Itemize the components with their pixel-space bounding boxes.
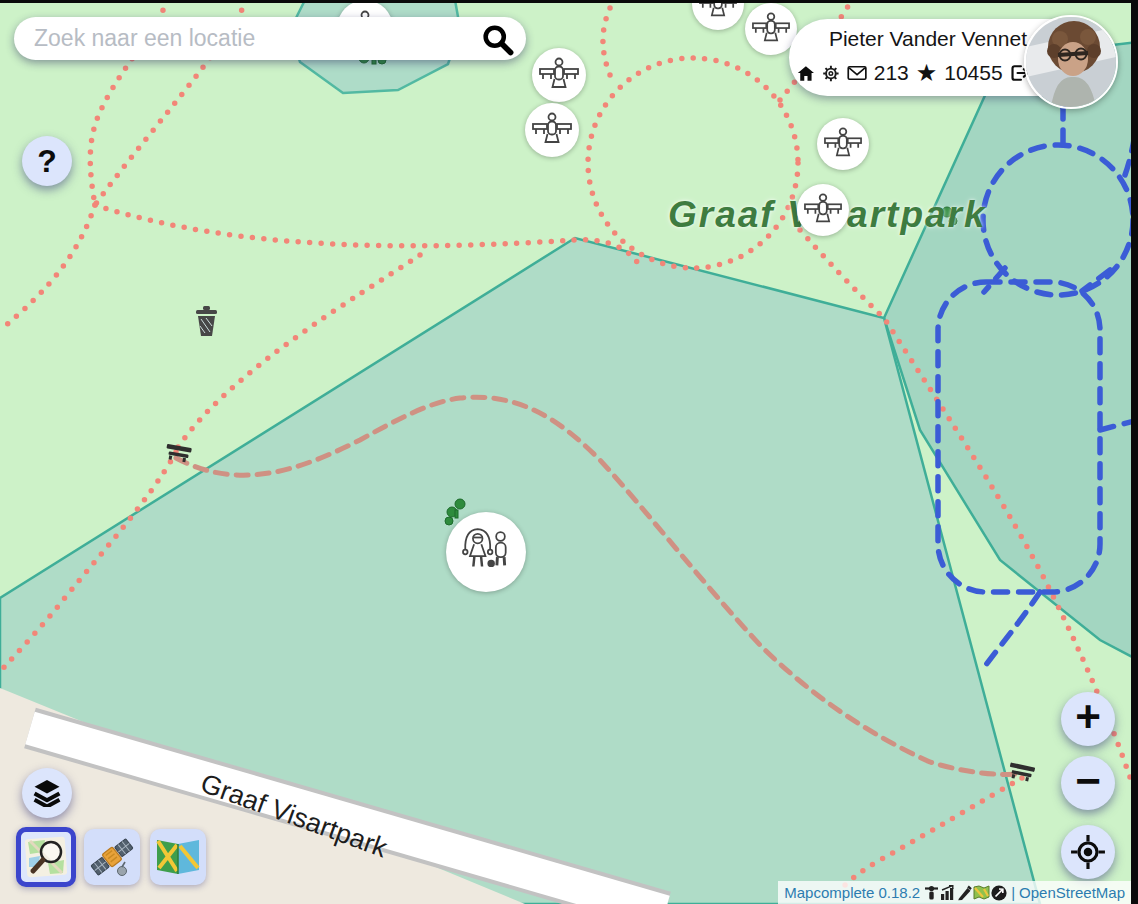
avatar-photo (1026, 17, 1116, 107)
picnic-table-icon (752, 10, 790, 48)
layers-icon (32, 779, 62, 807)
search-icon[interactable] (480, 22, 514, 56)
picnic-table-icon (824, 125, 862, 163)
osm-logo-icon (24, 835, 68, 879)
map-icon[interactable] (973, 885, 990, 900)
mapcomplete-app: Graaf Visartpark Graaf Visartpark (0, 0, 1138, 904)
geolocate-icon (1070, 834, 1106, 870)
search-input[interactable] (34, 25, 480, 52)
changesets-count[interactable]: 10455 (944, 61, 1002, 85)
attribution-bar: Mapcomplete 0.18.2 (778, 881, 1131, 904)
mapcomplete-version-link[interactable]: Mapcomplete 0.18.2 (784, 884, 920, 901)
user-actions: 213 ★ 10455 (797, 61, 1029, 85)
picnic-table-icon (539, 55, 579, 95)
copyright-icon[interactable] (991, 885, 1007, 901)
zoom-out-button[interactable]: − (1061, 756, 1115, 810)
picnic-table-marker[interactable] (817, 118, 869, 170)
user-name[interactable]: Pieter Vander Vennet (829, 27, 1027, 51)
folded-map-icon (155, 837, 201, 877)
chart-icon[interactable] (940, 885, 956, 901)
home-icon[interactable] (797, 63, 815, 84)
geolocate-button[interactable] (1061, 825, 1115, 879)
help-label: ? (37, 143, 57, 180)
help-button[interactable]: ? (22, 136, 72, 186)
search-bar (14, 17, 526, 60)
messages-count[interactable]: 213 (874, 61, 909, 85)
style-button-satellite[interactable] (84, 829, 140, 885)
messages-icon[interactable] (847, 63, 867, 83)
style-button-map[interactable] (150, 829, 206, 885)
picnic-table-marker[interactable] (525, 103, 579, 157)
style-button-osm-carto[interactable] (16, 827, 76, 887)
avatar[interactable] (1024, 15, 1118, 109)
openstreetmap-link[interactable]: OpenStreetMap (1019, 884, 1125, 901)
playground-marker[interactable] (446, 512, 526, 592)
picnic-table-icon (804, 191, 842, 229)
zoom-in-button[interactable]: + (1061, 692, 1115, 746)
window-frame-right (1131, 0, 1138, 904)
layers-button[interactable] (22, 768, 72, 818)
star-icon: ★ (916, 61, 938, 85)
gear-icon[interactable] (822, 62, 840, 85)
pencil-icon[interactable] (957, 885, 972, 901)
stats-icon[interactable] (924, 885, 939, 901)
picnic-table-marker[interactable] (797, 184, 849, 236)
picnic-table-icon (532, 110, 572, 150)
satellite-icon (89, 834, 135, 880)
picnic-table-icon (699, 0, 737, 23)
attribution-separator: | (1011, 884, 1015, 901)
attribution-icons (924, 885, 1007, 901)
window-frame-top (0, 0, 1138, 3)
picnic-table-marker[interactable] (532, 48, 586, 102)
playground-icon (457, 523, 515, 581)
